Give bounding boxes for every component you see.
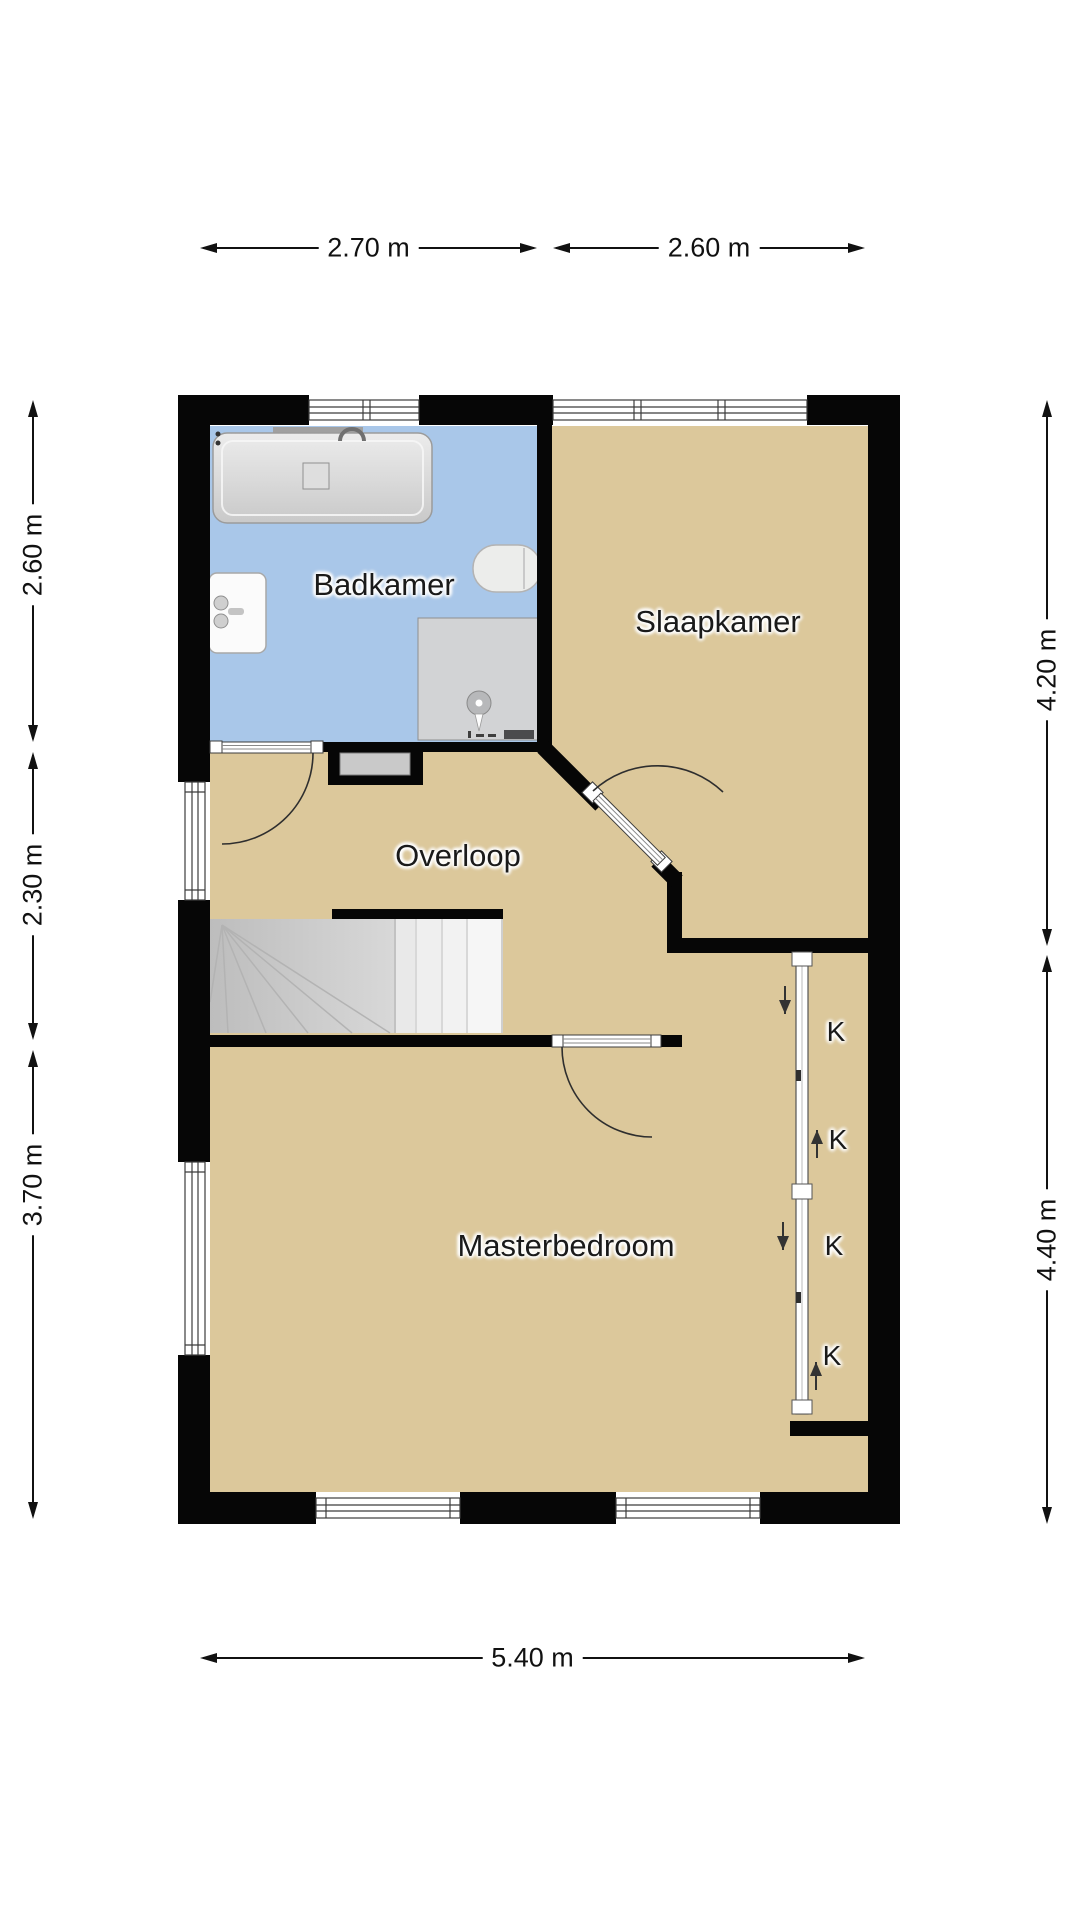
wall-bottom-2 [460, 1492, 616, 1524]
arrow-right-icon [848, 243, 865, 253]
bathtub [213, 427, 432, 523]
dimension-right-top: 4.20 m [1034, 400, 1060, 946]
room-label-overloop: Overloop [395, 838, 521, 874]
wall-left-1 [178, 395, 210, 782]
sink [209, 573, 266, 653]
wall-slaapkamer-bottom [682, 938, 868, 953]
closet-label-k4: K [823, 1340, 842, 1372]
dimension-top-right: 2.60 m [553, 235, 865, 261]
stairs [210, 919, 503, 1033]
dimension-label: 4.20 m [1032, 620, 1063, 721]
dimension-bottom: 5.40 m [200, 1645, 865, 1671]
dimension-left-top: 2.60 m [20, 400, 46, 742]
arrow-down-icon [1042, 929, 1052, 946]
room-label-badkamer: Badkamer [313, 567, 454, 603]
dimension-label: 2.70 m [318, 233, 419, 264]
dimension-label: 2.60 m [659, 233, 760, 264]
dimension-left-middle: 2.30 m [20, 752, 46, 1040]
dimension-label: 2.60 m [18, 505, 49, 606]
arrow-down-icon [28, 1023, 38, 1040]
dimension-right-bottom: 4.40 m [1034, 955, 1060, 1524]
floor-plan-drawing [0, 0, 1080, 1920]
closet-label-k3: K [825, 1230, 844, 1262]
arrow-down-icon [28, 1502, 38, 1519]
wall-bottom-3 [760, 1492, 900, 1524]
wall-bath-bottom [323, 742, 552, 752]
wall-right [868, 395, 900, 1524]
shower [418, 618, 540, 740]
dimension-left-bottom: 3.70 m [20, 1050, 46, 1519]
room-label-slaapkamer: Slaapkamer [635, 604, 800, 640]
dimension-label: 5.40 m [482, 1643, 583, 1674]
window-bottom-2 [616, 1498, 760, 1518]
arrow-down-icon [1042, 1507, 1052, 1524]
arrow-down-icon [28, 725, 38, 742]
tub-drain [303, 463, 329, 489]
wall-overloop-master-end [660, 1035, 682, 1047]
room-label-masterbedroom: Masterbedroom [457, 1228, 674, 1264]
window-left-2 [185, 1162, 205, 1355]
arrow-right-icon [520, 243, 537, 253]
dimension-label: 3.70 m [18, 1135, 49, 1236]
wall-bottom-1 [178, 1492, 316, 1524]
window-top-2 [553, 400, 807, 420]
closet-label-k2: K [829, 1124, 848, 1156]
dimension-top-left: 2.70 m [200, 235, 537, 261]
floorplan-page: Badkamer Slaapkamer Overloop Masterbedro… [0, 0, 1080, 1920]
dimension-label: 2.30 m [18, 835, 49, 936]
closet-label-k1: K [827, 1016, 846, 1048]
window-bottom-1 [316, 1498, 460, 1518]
dimension-label: 4.40 m [1032, 1190, 1063, 1291]
wall-left-2 [178, 900, 210, 1162]
wall-top-2 [419, 395, 553, 425]
toilet [473, 545, 541, 592]
window-left-1 [185, 782, 205, 900]
wall-closet-bottom [790, 1421, 868, 1436]
window-top-1 [309, 400, 419, 420]
wall-stair-stringer [332, 909, 503, 919]
wall-overloop-master [207, 1035, 553, 1047]
arrow-right-icon [848, 1653, 865, 1663]
wall-bath-slaapkamer [537, 425, 552, 745]
